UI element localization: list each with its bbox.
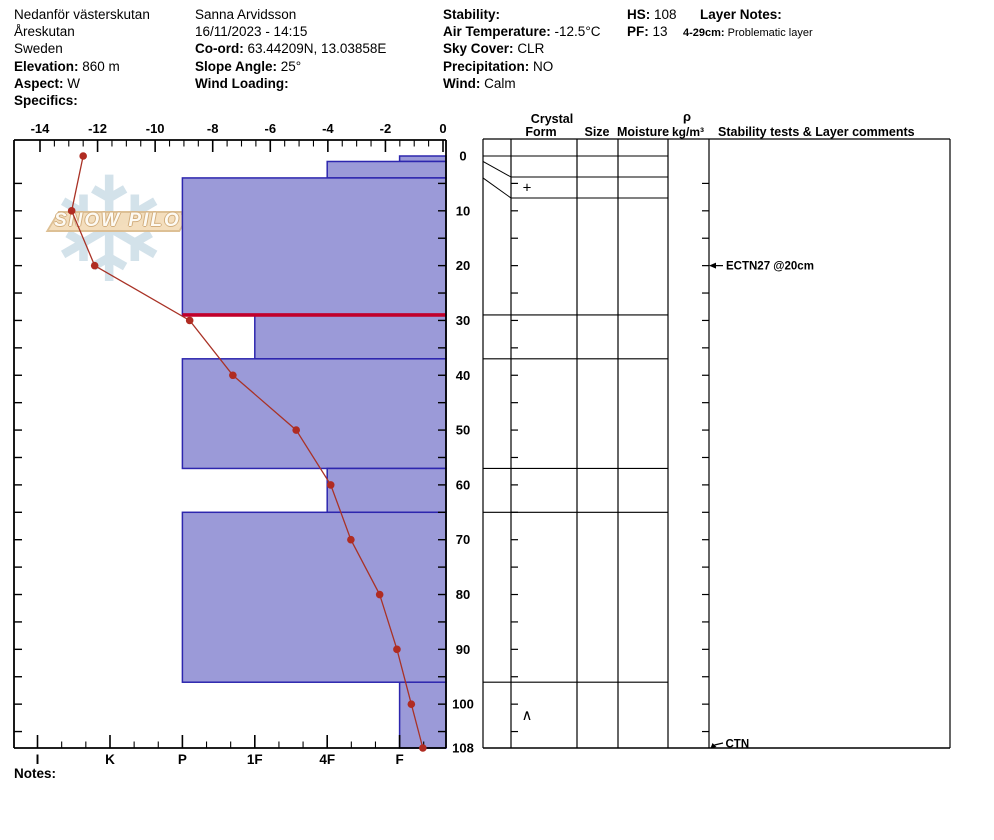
temperature-point — [68, 207, 76, 215]
temperature-point — [186, 317, 194, 325]
problematic-layer-line — [182, 313, 446, 317]
hardness-layer-bar — [182, 178, 446, 315]
stability-test-label: ECTN27 @20cm — [726, 261, 814, 273]
grain-form-symbol: + — [523, 180, 532, 197]
temperature-point — [408, 700, 416, 708]
depth-tick-label: 100 — [452, 697, 474, 712]
hardness-tick-label: 1F — [247, 752, 263, 767]
temperature-tick-label: -14 — [31, 121, 51, 136]
temperature-point — [347, 536, 355, 544]
depth-tick-label: 108 — [452, 741, 474, 756]
depth-tick-label: 30 — [456, 313, 470, 328]
comments-column-header: Stability tests & Layer comments — [718, 125, 915, 139]
snowpilot-profile-page: Nedanför västerskutan Åreskutan Sweden E… — [0, 0, 994, 840]
temperature-point — [376, 591, 384, 599]
hardness-layer-bar — [400, 682, 446, 748]
depth-tick-label: 0 — [459, 149, 466, 164]
hardness-layer-bar — [255, 315, 446, 359]
hardness-tick-label: 4F — [319, 752, 335, 767]
temperature-tick-label: 0 — [439, 121, 446, 136]
temperature-tick-label: -12 — [88, 121, 107, 136]
hardness-tick-label: P — [178, 752, 187, 767]
form-column-header: Form — [511, 125, 571, 139]
test-arrow-line — [715, 743, 724, 745]
depth-tick-label: 60 — [456, 477, 470, 492]
table-row-slant-line — [483, 161, 511, 177]
depth-tick-label: 40 — [456, 368, 470, 383]
test-arrow-head — [709, 263, 716, 269]
temperature-tick-label: -10 — [146, 121, 165, 136]
hardness-layer-bar — [182, 512, 446, 682]
temperature-point — [292, 426, 300, 434]
hardness-layer-bar — [400, 156, 446, 161]
stability-test-label: CTN — [726, 739, 750, 751]
depth-tick-label: 20 — [456, 258, 470, 273]
depth-tick-label: 90 — [456, 642, 470, 657]
temperature-point — [91, 262, 99, 270]
depth-tick-label: 10 — [456, 203, 470, 218]
hardness-layer-bar — [182, 359, 446, 469]
crystal-header: Crystal — [517, 112, 587, 126]
hardness-tick-label: I — [36, 752, 40, 767]
hardness-tick-label: F — [395, 752, 403, 767]
temperature-tick-label: -2 — [380, 121, 392, 136]
density-unit-header: kg/m³ — [658, 125, 718, 139]
grain-form-symbol: ∧ — [522, 707, 533, 724]
temperature-tick-label: -6 — [265, 121, 277, 136]
hardness-tick-label: K — [105, 752, 115, 767]
temperature-tick-label: -4 — [322, 121, 334, 136]
hardness-layer-bar — [327, 161, 446, 177]
density-header: ρ — [667, 109, 707, 124]
temperature-point — [327, 481, 335, 489]
temperature-point — [419, 744, 427, 752]
table-row-slant-line — [483, 178, 511, 198]
hardness-layer-bar — [327, 468, 446, 512]
depth-tick-label: 50 — [456, 423, 470, 438]
temperature-point — [393, 646, 401, 654]
temperature-tick-label: -8 — [207, 121, 219, 136]
temperature-point — [229, 371, 237, 379]
depth-tick-label: 80 — [456, 587, 470, 602]
temperature-point — [79, 152, 87, 160]
notes-label: Notes: — [14, 766, 56, 781]
depth-tick-label: 70 — [456, 532, 470, 547]
